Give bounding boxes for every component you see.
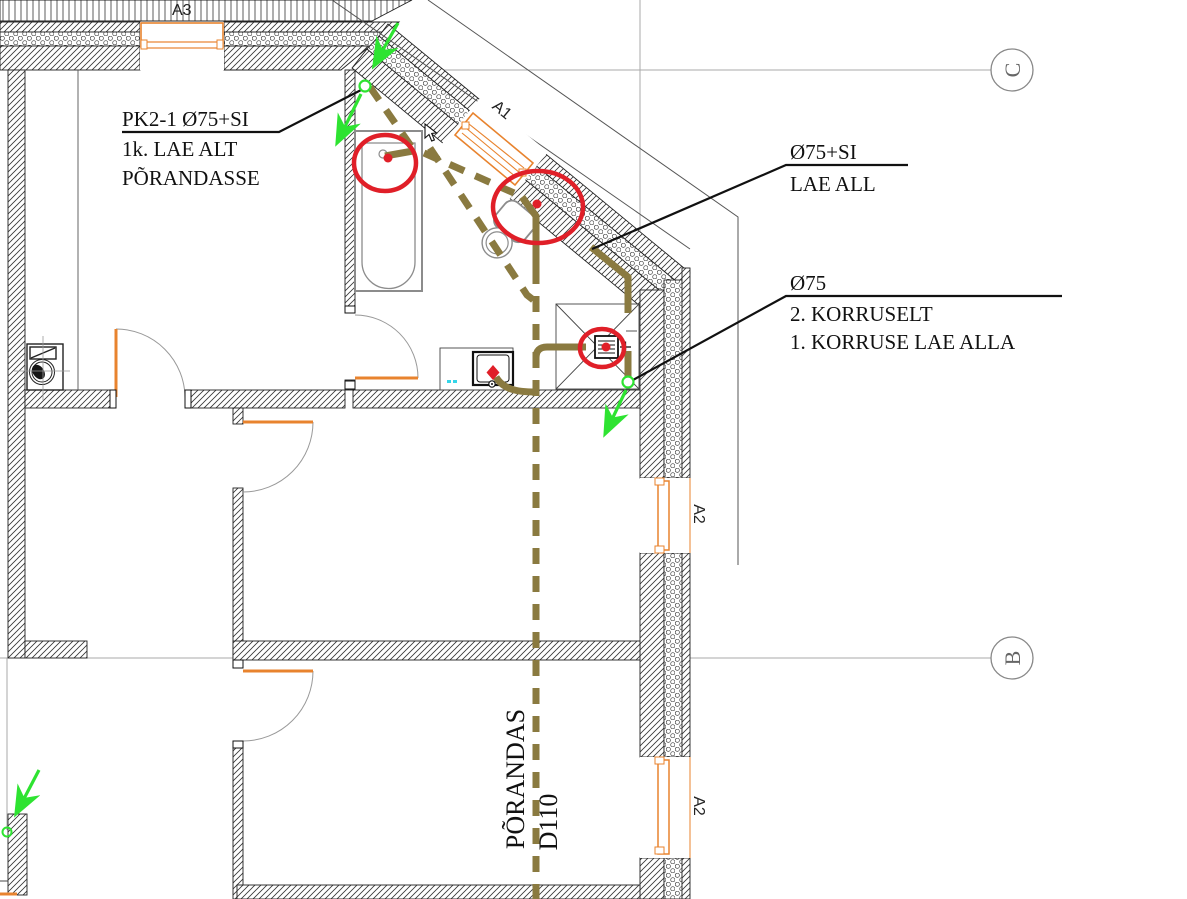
floor-plan-canvas: C B (0, 0, 1187, 899)
window-label-a3: A3 (172, 2, 192, 19)
point-toilet-drain (533, 200, 542, 209)
door-leaves (0, 329, 418, 894)
connection-node-top (360, 81, 371, 92)
walls (0, 0, 690, 899)
floor-pipe-label-line1: PÕRANDAS (501, 709, 530, 849)
annotation-korruselt-line3: 1. KORRUSE LAE ALLA (790, 330, 1016, 354)
annotation-pk2-line2: 1k. LAE ALT (122, 137, 237, 161)
annotation-pk2: PK2-1 Ø75+SI 1k. LAE ALT PÕRANDASSE (122, 107, 260, 190)
grid-label-b: B (1000, 651, 1025, 666)
grid-label-c: C (1000, 63, 1025, 78)
left-wall (8, 70, 25, 658)
eave-band (0, 0, 412, 21)
annotation-lae-all-line2: LAE ALL (790, 172, 876, 196)
cad-grip-mark (453, 380, 457, 383)
cad-grip-mark (447, 380, 451, 383)
window-a2-lower: A2 (640, 757, 707, 858)
flow-arrow-bottom-left (17, 770, 39, 812)
annotation-floor-pipe: PÕRANDAS D110 (501, 709, 563, 850)
annotation-lae-all: Ø75+SI LAE ALL (790, 140, 876, 196)
annotation-korruselt-line1: Ø75 (790, 271, 826, 295)
door-jambs (110, 306, 355, 748)
floor-plan-drawing: C B (0, 0, 1187, 899)
connection-node-wall (623, 377, 634, 388)
annotation-pk2-line3: PÕRANDASSE (122, 166, 260, 190)
annotation-korruselt: Ø75 2. KORRUSELT 1. KORRUSE LAE ALLA (790, 271, 1016, 354)
point-floor-drain (602, 343, 611, 352)
annotation-pk2-line1: PK2-1 Ø75+SI (122, 107, 249, 131)
annotation-korruselt-line2: 2. KORRUSELT (790, 302, 933, 326)
point-bathtub-drain (384, 154, 393, 163)
window-a2-upper: A2 (640, 478, 707, 553)
floor-pipe-label-line2: D110 (534, 794, 563, 851)
annotation-lae-all-line1: Ø75+SI (790, 140, 857, 164)
window-label-a2-upper: A2 (690, 504, 707, 524)
window-label-a2-lower: A2 (690, 796, 707, 816)
